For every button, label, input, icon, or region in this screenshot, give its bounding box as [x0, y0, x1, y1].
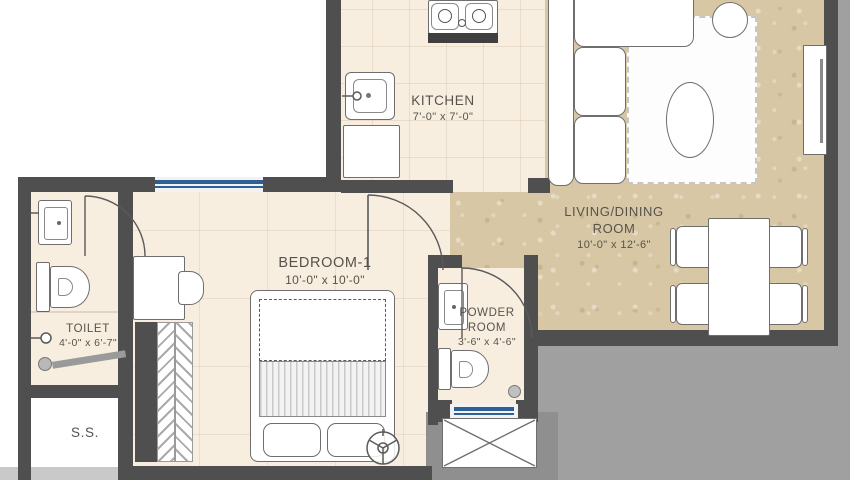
wall-powder-north-left	[428, 255, 462, 268]
wall-kitchen-west	[326, 0, 341, 192]
powder-wc-bowl	[451, 350, 489, 388]
powder-window	[450, 404, 518, 418]
powder-label-group: POWDER ROOM 3'-6" x 4'-6"	[444, 306, 530, 350]
pillow	[327, 423, 385, 457]
toilet-label-group: TOILET 4'-0" x 6'-7"	[38, 322, 138, 351]
side-table-round	[712, 2, 748, 38]
toilet-wc-bowl	[50, 266, 90, 308]
wardrobe-sliding-door	[157, 322, 175, 462]
dining-chair-backrest	[670, 285, 676, 323]
toilet-zone-divider	[31, 311, 118, 313]
bedroom-label-group: BEDROOM-1 10'-0" x 10'-0"	[245, 254, 405, 288]
wall-left-exterior	[18, 177, 31, 480]
floor-plan: KITCHEN 7'-0" x 7'-0" LIVING/DINING ROOM…	[0, 0, 850, 480]
wall-bedroom-south	[128, 466, 432, 480]
powder-wc-tank	[438, 348, 451, 390]
floor-drain	[38, 357, 52, 371]
duct-shaft-box	[442, 418, 537, 468]
bedroom-window	[155, 177, 263, 192]
living-label-group: LIVING/DINING ROOM 10'-0" x 12'-6"	[543, 204, 685, 252]
dining-table	[708, 218, 770, 336]
toilet-label: TOILET	[38, 322, 138, 337]
kitchen-label-group: KITCHEN 7'-0" x 7'-0"	[383, 92, 503, 124]
wall-toilet-north	[18, 177, 155, 192]
hob-burner-ring	[472, 9, 486, 23]
wardrobe-back-panel	[135, 322, 157, 462]
floor-drain	[508, 385, 521, 398]
wall-ss-north	[18, 385, 133, 398]
hob-counter-edge	[428, 33, 498, 43]
toilet-wc-tank	[36, 262, 50, 312]
pillow	[263, 423, 321, 457]
kitchen-counter	[343, 125, 400, 178]
tv-screen	[820, 59, 823, 143]
dining-chair-backrest	[802, 285, 808, 323]
toilet-wc-flush	[58, 278, 73, 296]
living-label: LIVING/DINING ROOM	[543, 204, 685, 238]
kitchen-sink-drain	[366, 93, 371, 98]
wall-bedroom-north-right	[341, 180, 453, 193]
wardrobe-sliding-door	[175, 322, 193, 462]
desk-chair	[178, 271, 204, 305]
toilet-washbasin	[38, 200, 72, 245]
gas-hob-unit	[428, 0, 498, 34]
basin-drain-dot	[57, 221, 61, 225]
window-glass-line	[454, 407, 514, 411]
sofa-seat-cushion	[574, 116, 626, 184]
sofa-seat-cushion	[574, 47, 626, 116]
kitchen-dims: 7'-0" x 7'-0"	[383, 110, 503, 124]
bed-sheet-dashed	[259, 299, 386, 361]
toilet-washbasin-inner	[44, 207, 68, 240]
powder-dims: 3'-6" x 4'-6"	[444, 336, 530, 350]
coffee-table-oval	[666, 82, 714, 158]
bedroom-dims: 10'-0" x 10'-0"	[245, 273, 405, 289]
hob-knob	[458, 19, 466, 27]
window-glass-line	[454, 413, 514, 415]
sofa-chaise-cushion	[574, 0, 694, 47]
double-bed	[250, 290, 395, 462]
powder-wc-flush	[459, 361, 473, 378]
window-glass-line	[155, 186, 263, 188]
living-dims: 10'-0" x 12'-6"	[543, 238, 685, 252]
tv-unit	[803, 45, 827, 155]
toilet-dims: 4'-0" x 6'-7"	[38, 337, 138, 351]
wall-stub-kitchen-living	[528, 178, 550, 193]
powder-label: POWDER ROOM	[444, 306, 530, 336]
window-glass-line	[155, 180, 263, 184]
hob-burner-ring	[438, 9, 452, 23]
bedroom-label: BEDROOM-1	[245, 254, 405, 273]
wall-living-south	[530, 330, 838, 346]
sofa-backrest	[548, 0, 574, 186]
ss-label: S.S.	[45, 424, 125, 442]
kitchen-label: KITCHEN	[383, 92, 503, 110]
dining-chair-backrest	[802, 228, 808, 266]
exterior-bottom-right	[535, 332, 850, 480]
bed-blanket-striped	[259, 361, 386, 417]
